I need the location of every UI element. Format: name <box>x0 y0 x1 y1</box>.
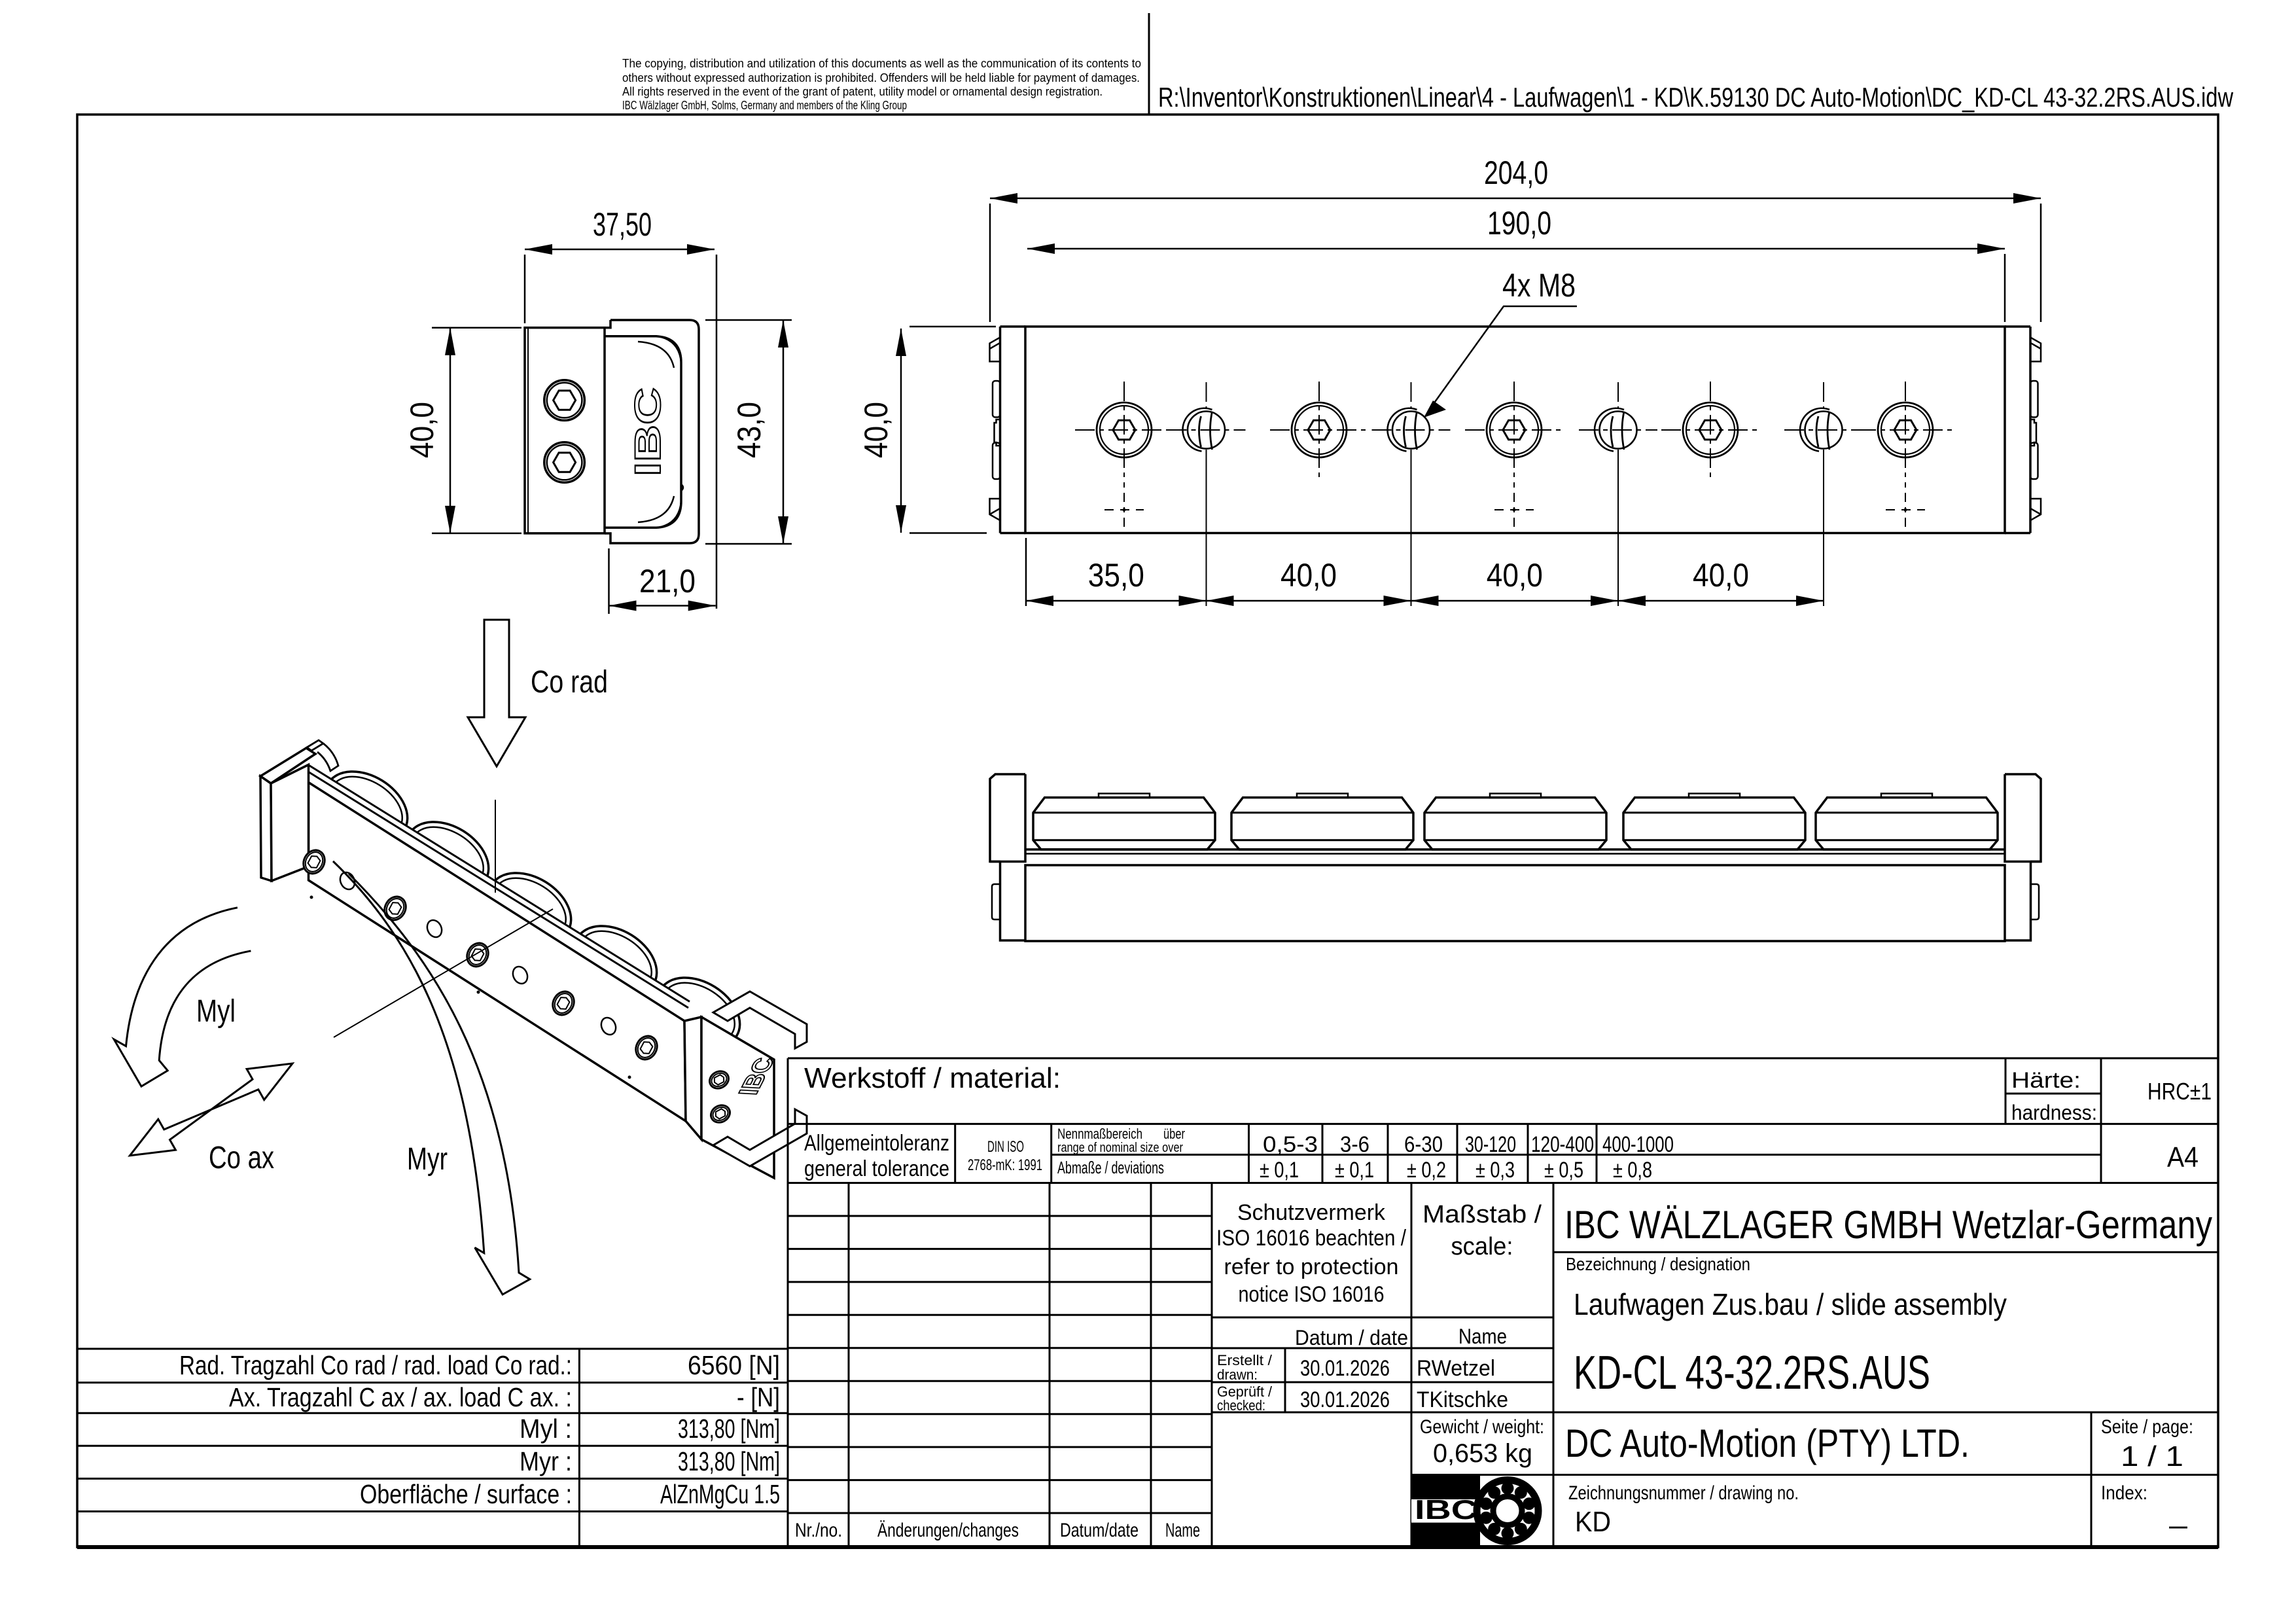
svg-text:4x M8: 4x M8 <box>1502 267 1576 304</box>
svg-text:Datum/date: Datum/date <box>1060 1520 1139 1541</box>
svg-text:R:\Inventor\Konstruktionen\Lin: R:\Inventor\Konstruktionen\Linear\4 - La… <box>1158 82 2234 113</box>
svg-text:Härte:: Härte: <box>2011 1068 2081 1093</box>
svg-text:scale:: scale: <box>1451 1233 1513 1260</box>
svg-text:The copying, distribution and: The copying, distribution and utilizatio… <box>622 56 1141 70</box>
svg-text:Werkstoff / material:: Werkstoff / material: <box>804 1062 1061 1094</box>
svg-text:Datum / date: Datum / date <box>1295 1326 1408 1349</box>
svg-text:IBC: IBC <box>1415 1494 1477 1525</box>
svg-text:400-1000: 400-1000 <box>1602 1132 1674 1157</box>
svg-text:± 0,1: ± 0,1 <box>1335 1158 1374 1183</box>
svg-text:A4: A4 <box>2167 1141 2199 1173</box>
svg-text:über: über <box>1163 1126 1185 1142</box>
svg-text:Oberfläche / surface :: Oberfläche / surface : <box>360 1479 572 1509</box>
svg-text:37,50: 37,50 <box>593 206 652 243</box>
svg-text:40,0: 40,0 <box>1487 557 1543 594</box>
svg-text:RWetzel: RWetzel <box>1417 1356 1495 1381</box>
svg-text:ISO 16016 beachten /: ISO 16016 beachten / <box>1216 1226 1406 1251</box>
svg-text:2768-mK: 1991: 2768-mK: 1991 <box>968 1156 1042 1174</box>
svg-text:40,0: 40,0 <box>404 402 440 458</box>
svg-text:Gewicht / weight:: Gewicht / weight: <box>1420 1416 1544 1438</box>
svg-text:KD-CL 43-32.2RS.AUS: KD-CL 43-32.2RS.AUS <box>1574 1347 1930 1399</box>
svg-text:Bezeichnung / designation: Bezeichnung / designation <box>1566 1254 1750 1274</box>
svg-text:6-30: 6-30 <box>1404 1132 1443 1157</box>
svg-text:Nennmaßbereich: Nennmaßbereich <box>1057 1126 1142 1142</box>
svg-text:± 0,5: ± 0,5 <box>1544 1158 1583 1183</box>
svg-text:HRC±1: HRC±1 <box>2147 1078 2212 1105</box>
svg-text:Abmaße / deviations: Abmaße / deviations <box>1057 1158 1164 1177</box>
svg-text:Allgemeintoleranz: Allgemeintoleranz <box>804 1131 949 1156</box>
svg-text:35,0: 35,0 <box>1088 557 1144 594</box>
svg-text:Name: Name <box>1165 1520 1200 1541</box>
svg-text:30-120: 30-120 <box>1465 1132 1516 1157</box>
svg-text:Myr :: Myr : <box>520 1446 572 1476</box>
svg-text:120-400: 120-400 <box>1531 1132 1594 1157</box>
svg-text:checked:: checked: <box>1217 1397 1265 1414</box>
svg-text:± 0,1: ± 0,1 <box>1260 1158 1299 1183</box>
svg-text:Nr./no.: Nr./no. <box>795 1520 842 1541</box>
svg-text:Änderungen/changes: Änderungen/changes <box>877 1520 1019 1541</box>
svg-text:Myl :: Myl : <box>520 1414 572 1444</box>
svg-text:Ax. Tragzahl C ax / ax. load C: Ax. Tragzahl C ax / ax. load C ax. : <box>229 1382 572 1412</box>
svg-text:± 0,2: ± 0,2 <box>1407 1158 1446 1183</box>
svg-text:Co rad: Co rad <box>531 665 608 700</box>
svg-text:Maßstab /: Maßstab / <box>1422 1201 1542 1228</box>
svg-text:drawn:: drawn: <box>1217 1366 1258 1383</box>
svg-text:± 0,3: ± 0,3 <box>1475 1158 1515 1183</box>
svg-text:30.01.2026: 30.01.2026 <box>1300 1387 1390 1412</box>
svg-text:IBC Wälzlager GmbH, Solms, Ger: IBC Wälzlager GmbH, Solms, Germany and m… <box>622 98 907 112</box>
svg-text:Name: Name <box>1458 1325 1507 1348</box>
svg-text:Co ax: Co ax <box>209 1141 274 1175</box>
svg-text:KD: KD <box>1575 1506 1611 1538</box>
svg-text:DIN ISO: DIN ISO <box>987 1138 1024 1156</box>
svg-text:notice ISO 16016: notice ISO 16016 <box>1239 1282 1385 1307</box>
svg-text:hardness:: hardness: <box>2011 1101 2097 1124</box>
svg-text:21,0: 21,0 <box>639 563 696 599</box>
svg-text:0,653 kg: 0,653 kg <box>1433 1439 1532 1468</box>
svg-text:40,0: 40,0 <box>1693 557 1749 594</box>
svg-text:refer to protection: refer to protection <box>1224 1255 1399 1279</box>
svg-text:Seite / page:: Seite / page: <box>2101 1416 2193 1438</box>
svg-text:6560 [N]: 6560 [N] <box>688 1350 780 1380</box>
svg-text:43,0: 43,0 <box>731 402 768 458</box>
svg-text:Schutzvermerk: Schutzvermerk <box>1237 1200 1386 1225</box>
svg-text:190,0: 190,0 <box>1487 205 1551 241</box>
svg-text:204,0: 204,0 <box>1484 154 1548 191</box>
svg-text:313,80 [Nm]: 313,80 [Nm] <box>678 1414 780 1444</box>
svg-text:range of nominal size over: range of nominal size over <box>1057 1141 1183 1155</box>
svg-text:30.01.2026: 30.01.2026 <box>1300 1356 1390 1381</box>
svg-text:TKitschke: TKitschke <box>1417 1387 1508 1412</box>
svg-text:Myl: Myl <box>196 994 236 1029</box>
svg-text:DC Auto-Motion (PTY) LTD.: DC Auto-Motion (PTY) LTD. <box>1565 1421 1969 1465</box>
svg-text:All rights reserved in the eve: All rights reserved in the event of the … <box>622 84 1103 98</box>
svg-text:Rad. Tragzahl Co rad / rad. lo: Rad. Tragzahl Co rad / rad. load Co rad.… <box>179 1350 572 1380</box>
svg-text:IBC: IBC <box>627 387 668 476</box>
svg-text:–: – <box>2169 1509 2188 1541</box>
svg-text:IBC WÄLZLAGER GMBH Wetzlar-Ger: IBC WÄLZLAGER GMBH Wetzlar-Germany <box>1564 1203 2212 1247</box>
svg-text:1 / 1: 1 / 1 <box>2121 1440 2183 1472</box>
svg-text:40,0: 40,0 <box>1280 557 1337 594</box>
svg-text:0,5-3: 0,5-3 <box>1263 1132 1318 1157</box>
svg-text:± 0,8: ± 0,8 <box>1613 1158 1652 1183</box>
svg-text:- [N]: - [N] <box>737 1382 780 1412</box>
svg-text:Index:: Index: <box>2101 1482 2147 1504</box>
svg-text:general tolerance: general tolerance <box>804 1156 949 1181</box>
svg-text:3-6: 3-6 <box>1340 1132 1369 1157</box>
svg-text:Zeichnungsnummer / drawing no.: Zeichnungsnummer / drawing no. <box>1568 1482 1799 1504</box>
svg-text:313,80 [Nm]: 313,80 [Nm] <box>678 1446 780 1476</box>
svg-text:others without expressed autho: others without expressed authorization i… <box>622 71 1140 84</box>
svg-text:40,0: 40,0 <box>858 402 894 458</box>
svg-text:AlZnMgCu 1.5: AlZnMgCu 1.5 <box>660 1479 780 1509</box>
svg-text:Laufwagen Zus.bau / slide asse: Laufwagen Zus.bau / slide assembly <box>1574 1287 2007 1321</box>
svg-text:Myr: Myr <box>407 1142 448 1177</box>
